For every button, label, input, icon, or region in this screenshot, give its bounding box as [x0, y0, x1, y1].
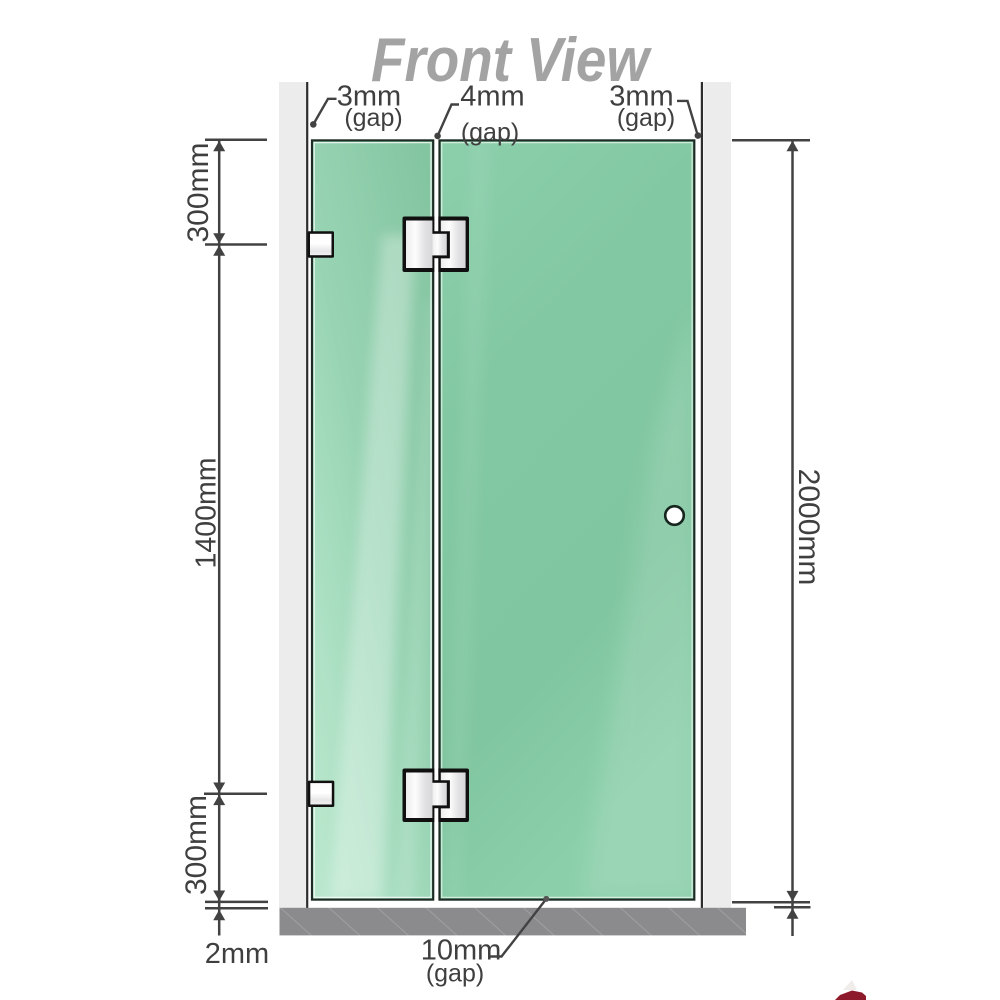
svg-text:(gap): (gap) — [617, 104, 675, 132]
svg-text:(gap): (gap) — [344, 104, 402, 132]
svg-text:4mm: 4mm — [460, 81, 524, 113]
svg-text:(gap): (gap) — [461, 119, 519, 147]
svg-text:(gap): (gap) — [426, 960, 484, 988]
svg-text:300mm: 300mm — [182, 142, 215, 242]
svg-text:2000mm: 2000mm — [792, 469, 825, 586]
svg-text:1400mm: 1400mm — [191, 458, 223, 569]
svg-text:300mm: 300mm — [180, 795, 213, 895]
svg-text:2mm: 2mm — [205, 938, 269, 970]
